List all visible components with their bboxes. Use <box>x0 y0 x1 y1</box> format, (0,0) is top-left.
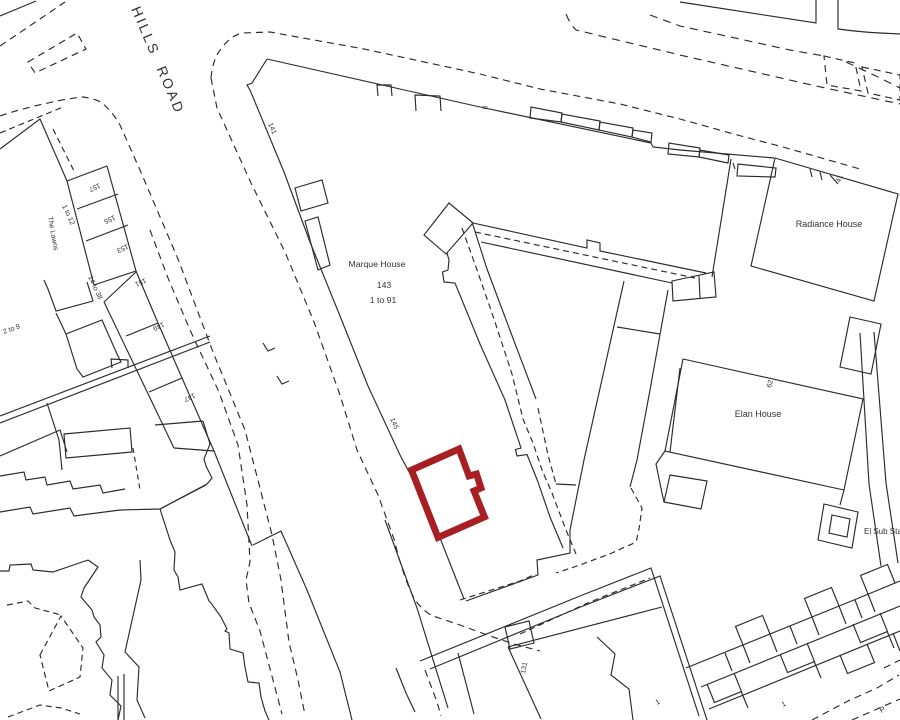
svg-text:149: 149 <box>151 320 165 331</box>
svg-text:143: 143 <box>377 280 392 290</box>
svg-text:131: 131 <box>520 661 529 674</box>
svg-text:147: 147 <box>182 391 196 402</box>
svg-text:151: 151 <box>133 276 147 287</box>
svg-text:1: 1 <box>655 699 662 707</box>
svg-text:1: 1 <box>781 701 788 709</box>
svg-text:2 to 9: 2 to 9 <box>2 323 21 336</box>
svg-text:Marque House: Marque House <box>349 259 406 269</box>
svg-text:157: 157 <box>87 181 101 192</box>
svg-text:145: 145 <box>388 417 399 431</box>
svg-text:153: 153 <box>115 242 129 253</box>
svg-text:41: 41 <box>835 174 844 184</box>
svg-text:The Lawns: The Lawns <box>46 216 59 251</box>
svg-text:HILLS ROAD: HILLS ROAD <box>128 4 188 117</box>
svg-text:9: 9 <box>480 105 488 110</box>
svg-text:Elan House: Elan House <box>735 409 782 419</box>
svg-text:62: 62 <box>766 379 775 388</box>
svg-text:Radiance House: Radiance House <box>796 219 863 229</box>
svg-text:1 to 91: 1 to 91 <box>370 295 397 305</box>
svg-text:155: 155 <box>102 213 116 224</box>
svg-text:El Sub Sta: El Sub Sta <box>864 527 900 536</box>
